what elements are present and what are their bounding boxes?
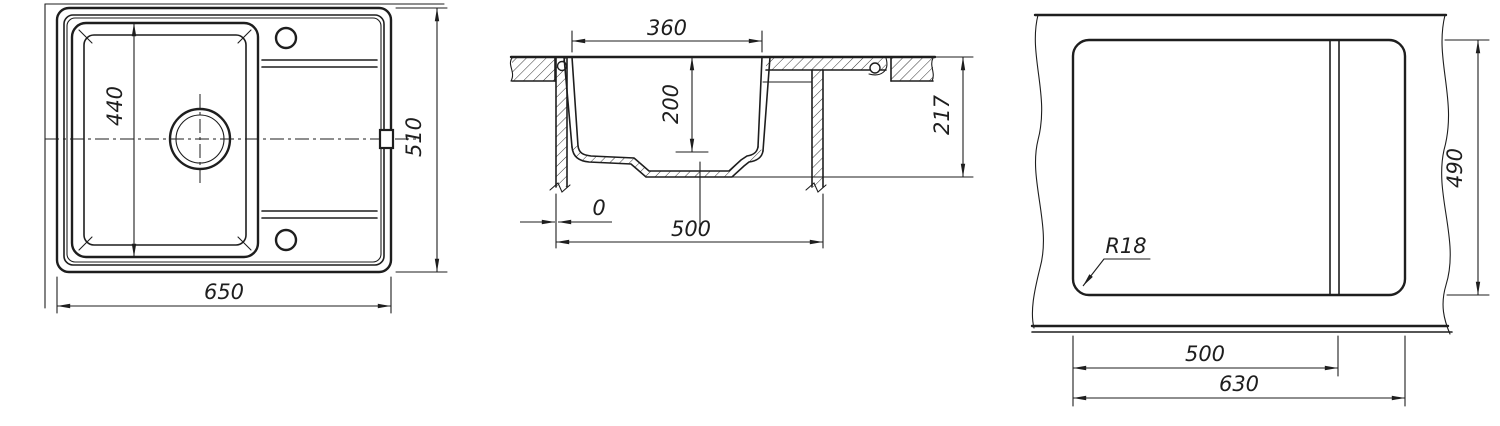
dim-217-label: 217 (930, 94, 954, 135)
clip-circle (870, 63, 880, 73)
bowl-wall-right-outer (763, 57, 770, 151)
section-view: 360 200 217 0 500 (510, 16, 973, 248)
bowl-inner-edge (84, 35, 246, 245)
rim-band (763, 58, 887, 82)
bowl-section (564, 57, 973, 228)
dim-total-height: 217 (930, 57, 963, 177)
dim-500-section-label: 500 (671, 217, 711, 241)
bowl-wall-left-inner (572, 57, 578, 146)
dim-cutout-width-total: 630 (1073, 336, 1405, 406)
dim-490-label: 490 (1443, 148, 1467, 188)
dim-overall-depth: 510 (396, 8, 447, 272)
dim-650-label: 650 (204, 280, 244, 304)
countertop-right (891, 58, 933, 81)
dim-440-label: 440 (103, 86, 127, 126)
dim-630-label: 630 (1219, 372, 1259, 396)
bowl-corner-chamfers (79, 30, 251, 250)
dim-bowl-depth: 200 (659, 57, 708, 152)
dim-0-label: 0 (592, 196, 605, 220)
countertop-panel (1032, 15, 1452, 334)
overflow-tab (380, 130, 393, 148)
dim-cutout-width-main: 500 (1073, 336, 1338, 406)
dim-bowl-length: 440 (103, 23, 134, 257)
dim-overall-width: 650 (57, 277, 391, 313)
bowl-wall-right-inner (758, 57, 762, 147)
sink-right-wall (806, 70, 826, 192)
countertop-left (510, 58, 555, 81)
tap-hole-bottom (276, 230, 296, 250)
tap-hole-top (276, 28, 296, 48)
corner-radius-callout: R18 (1083, 234, 1150, 286)
dim-edge-offset: 0 (520, 194, 612, 248)
dim-360-label: 360 (647, 16, 687, 40)
dim-200-label: 200 (659, 84, 683, 124)
dim-510-label: 510 (402, 117, 426, 157)
cutout-view: R18 490 500 630 (1032, 15, 1489, 406)
dim-500-cutout-label: 500 (1185, 342, 1225, 366)
dim-r18-label: R18 (1105, 234, 1146, 258)
sink-technical-drawing: 440 510 650 (0, 0, 1500, 426)
drawing-canvas: 440 510 650 (0, 0, 1500, 426)
dim-bowl-opening: 360 (572, 16, 762, 52)
break-edge-left (1032, 15, 1043, 328)
top-view: 440 510 650 (45, 4, 447, 313)
